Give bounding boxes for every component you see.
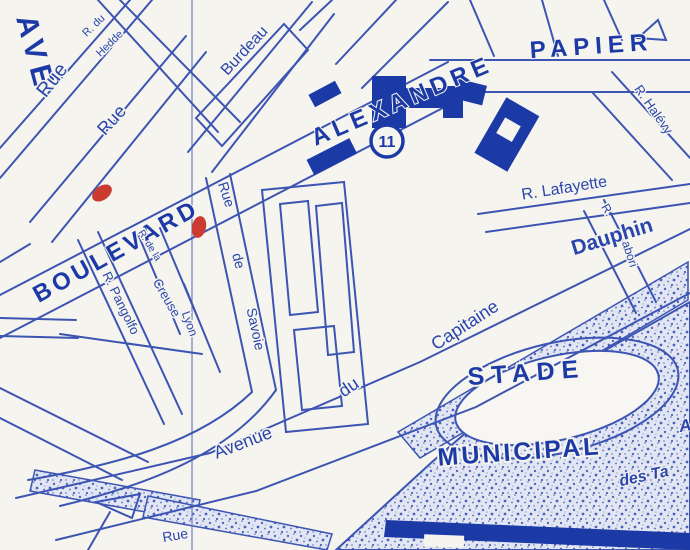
city-map-svg: 11 AVE R. du Hedde Rue Rue Burdeau BOULE… [0,0,690,550]
badge-number-text: 11 [379,134,396,151]
location-badge-11: 11 [371,125,403,157]
map-canvas: 11 AVE R. du Hedde Rue Rue Burdeau BOULE… [0,0,690,550]
